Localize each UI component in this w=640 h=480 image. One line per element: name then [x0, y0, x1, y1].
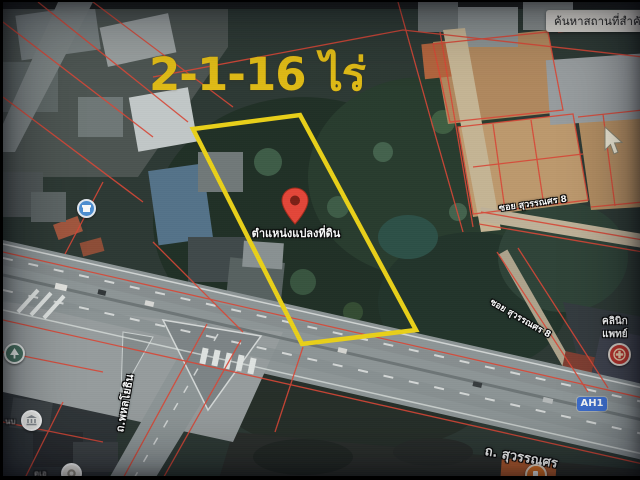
clinic-logo-icon[interactable]: [608, 343, 631, 366]
poi-label-clinic-line2: แพทย์: [602, 328, 628, 341]
highway-shield-ah1: AH1: [577, 397, 607, 411]
bank-poi-icon[interactable]: [21, 410, 42, 431]
poi-label-partial-bottom: ดเอ: [34, 467, 47, 480]
gas-poi-icon[interactable]: [525, 464, 547, 480]
pin-caption-label: ตำแหน่งแปลงที่ดิน: [231, 224, 361, 242]
food-poi-icon[interactable]: [61, 463, 82, 480]
poi-label-partial-left: นบ: [5, 415, 16, 428]
area-size-label: 2-1-16 ไร่: [149, 38, 365, 110]
map-canvas[interactable]: 2-1-16 ไร่ ค้นหาสถานที่สำคั ตำแหน่งแปลงท…: [0, 0, 640, 480]
poi-label-clinic-line1: คลินิก: [602, 315, 628, 328]
store-poi-icon[interactable]: [77, 199, 96, 218]
location-pin-icon[interactable]: [279, 186, 311, 228]
poi-label-clinic[interactable]: คลินิก แพทย์: [602, 315, 628, 341]
mouse-cursor-icon: [602, 126, 626, 158]
search-input[interactable]: ค้นหาสถานที่สำคั: [546, 10, 640, 32]
park-poi-icon[interactable]: [4, 343, 25, 364]
